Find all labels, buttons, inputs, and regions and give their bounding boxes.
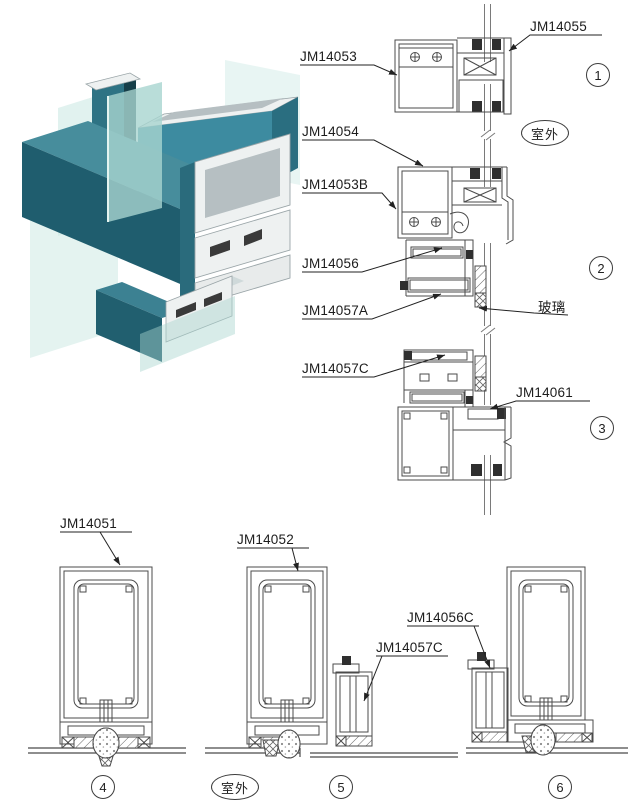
snap-hook [450, 212, 468, 233]
annotation-glass: 玻璃 [538, 300, 565, 315]
catalog-page: JM14053 JM14055 JM14054 JM14053B JM14056… [0, 0, 632, 805]
callout-jm14061: JM14061 [516, 385, 573, 400]
sealant-blob [531, 725, 555, 755]
sealant-blob [278, 730, 300, 758]
callout-jm14051: JM14051 [60, 516, 117, 531]
callout-jm14056: JM14056 [302, 256, 359, 271]
detail-marker-4: 4 [91, 775, 115, 799]
outdoor-oval-bottom: 室外 [211, 774, 259, 800]
sub-sill-profile [333, 656, 372, 746]
detail-3-drawing [398, 350, 511, 480]
glass-pane-line [481, 4, 495, 515]
callout-jm14054: JM14054 [302, 124, 359, 139]
callout-jm14053b: JM14053B [302, 177, 368, 192]
detail-1-drawing [395, 38, 511, 114]
callout-jm14053: JM14053 [300, 49, 357, 64]
screw-symbol [411, 53, 442, 62]
sub-sill-profile [468, 652, 508, 742]
screw-symbol [410, 218, 441, 227]
detail-6-drawing [468, 567, 593, 755]
detail-5-drawing [247, 567, 372, 758]
callout-jm14057c-top: JM14057C [302, 361, 369, 376]
callout-jm14057c-bottom: JM14057C [376, 640, 443, 655]
detail-marker-6: 6 [548, 775, 572, 799]
callout-jm14055: JM14055 [530, 19, 587, 34]
detail-marker-5: 5 [329, 775, 353, 799]
outdoor-oval-top: 室外 [521, 120, 569, 146]
callout-jm14052: JM14052 [237, 532, 294, 547]
detail-4-drawing [60, 567, 152, 766]
assembly-3d-render [22, 60, 300, 372]
detail-2-drawing [398, 167, 513, 307]
callout-jm14056c: JM14056C [407, 610, 474, 625]
glass-panel-front [108, 82, 162, 222]
sealant-blob [93, 728, 119, 758]
detail-marker-2: 2 [589, 256, 613, 280]
detail-marker-1: 1 [586, 63, 610, 87]
callout-jm14057a: JM14057A [302, 303, 368, 318]
detail-marker-3: 3 [590, 416, 614, 440]
